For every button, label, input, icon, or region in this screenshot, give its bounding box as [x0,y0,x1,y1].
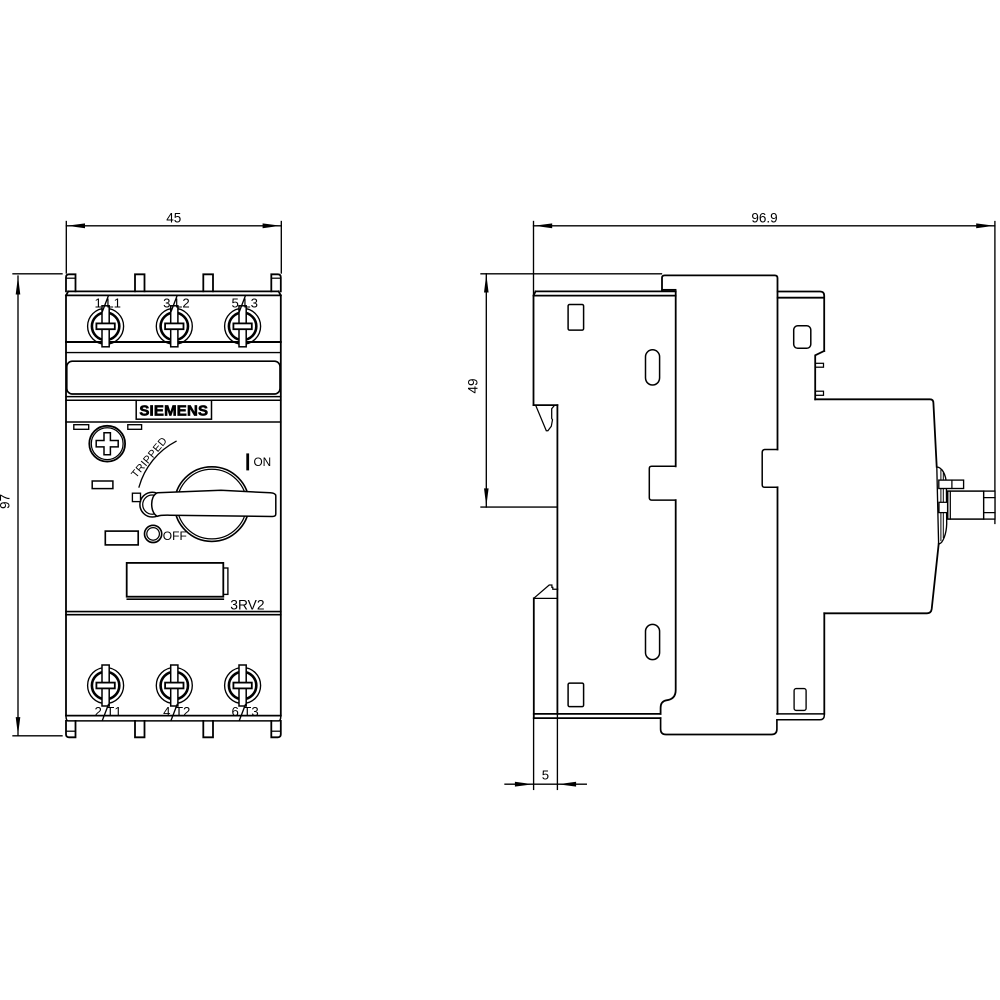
svg-text:T1: T1 [106,704,121,719]
svg-text:5: 5 [231,296,238,311]
svg-text:OFF: OFF [163,529,187,543]
svg-text:3RV2: 3RV2 [230,598,264,613]
svg-text:T3: T3 [243,704,258,719]
svg-text:T2: T2 [175,704,190,719]
svg-text:6: 6 [231,704,238,719]
svg-text:45: 45 [166,211,181,226]
svg-text:ON: ON [254,455,272,469]
svg-text:SIEMENS: SIEMENS [139,402,208,419]
svg-text:1: 1 [94,296,101,311]
svg-text:L3: L3 [243,296,258,311]
svg-text:L2: L2 [175,296,190,311]
svg-text:4: 4 [163,704,170,719]
svg-text:49: 49 [466,378,481,393]
svg-text:L1: L1 [106,296,121,311]
svg-text:3: 3 [163,296,170,311]
svg-text:2: 2 [94,704,101,719]
svg-text:5: 5 [542,768,549,783]
svg-text:97: 97 [0,494,13,509]
svg-text:96.9: 96.9 [751,211,777,226]
svg-text:TRIPPED: TRIPPED [129,435,170,481]
